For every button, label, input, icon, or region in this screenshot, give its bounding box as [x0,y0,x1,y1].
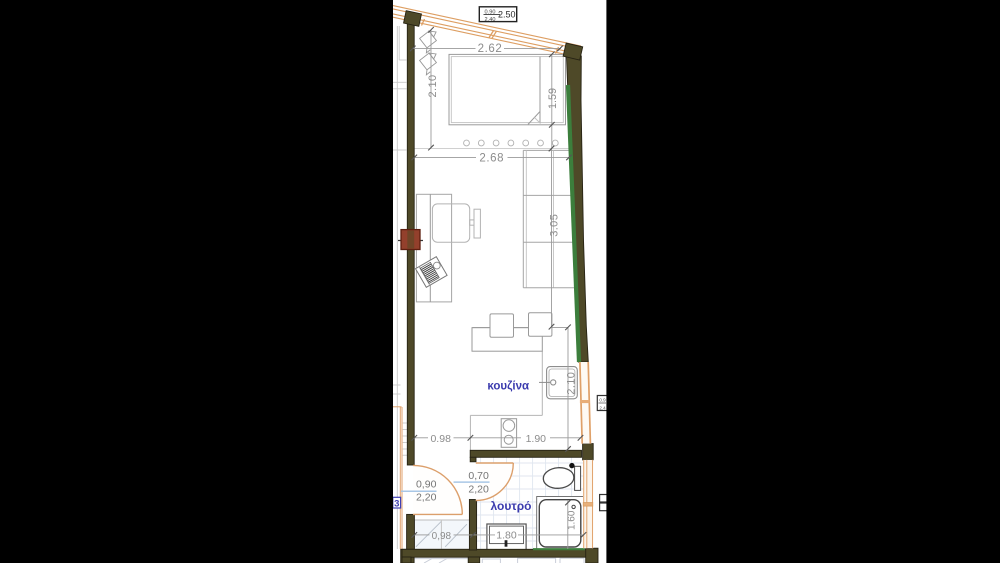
svg-text:2.40: 2.40 [485,17,496,23]
svg-text:1.80: 1.80 [496,530,517,542]
svg-text:λουτρό: λουτρό [491,499,532,513]
svg-text:2.50: 2.50 [498,10,516,20]
svg-text:1.60: 1.60 [566,510,577,530]
svg-text:κουζίνα: κουζίνα [487,381,529,393]
svg-text:2.10: 2.10 [427,74,439,97]
svg-text:2,20: 2,20 [416,492,437,504]
svg-text:0,98: 0,98 [432,531,452,542]
svg-text:1.90: 1.90 [526,433,547,445]
svg-text:0,70: 0,70 [468,470,489,482]
svg-text:2.68: 2.68 [479,152,504,164]
svg-text:0.9: 0.9 [599,398,606,403]
svg-text:3.05: 3.05 [548,214,560,237]
svg-text:0,90: 0,90 [416,479,437,491]
svg-text:1.59: 1.59 [547,88,559,109]
svg-text:2.10: 2.10 [566,372,578,395]
svg-text:2.62: 2.62 [478,43,503,55]
svg-text:0.98: 0.98 [430,433,451,445]
svg-text:3: 3 [394,498,399,509]
svg-text:2,20: 2,20 [468,484,489,496]
svg-text:2.4: 2.4 [599,406,606,411]
